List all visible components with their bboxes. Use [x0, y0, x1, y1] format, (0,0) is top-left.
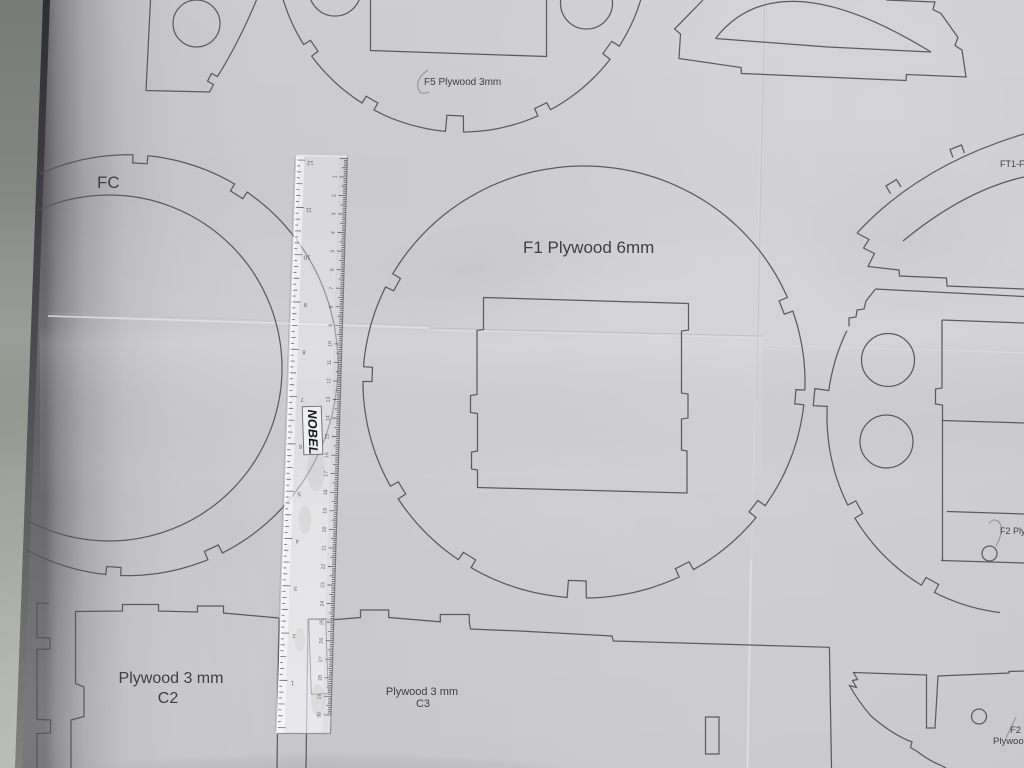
svg-text:11: 11 [305, 206, 312, 212]
svg-text:23: 23 [320, 582, 326, 588]
svg-text:20: 20 [322, 526, 328, 532]
svg-text:19: 19 [322, 508, 328, 514]
svg-text:15: 15 [325, 434, 331, 440]
svg-text:9: 9 [328, 324, 334, 327]
svg-text:12: 12 [326, 378, 332, 384]
svg-text:NOBEL: NOBEL [305, 409, 321, 455]
svg-text:C3: C3 [416, 698, 430, 710]
svg-text:4: 4 [331, 231, 337, 234]
svg-text:21: 21 [321, 545, 327, 551]
svg-text:5: 5 [330, 250, 336, 253]
svg-text:F1 Plywood 6mm: F1 Plywood 6mm [523, 238, 654, 257]
svg-text:27: 27 [318, 656, 324, 662]
svg-text:Plywood: Plywood [993, 736, 1024, 747]
svg-text:16: 16 [324, 452, 330, 458]
svg-text:10: 10 [303, 253, 311, 259]
svg-text:11: 11 [327, 360, 333, 366]
svg-text:8: 8 [328, 305, 334, 308]
svg-text:25: 25 [319, 619, 325, 625]
svg-text:6: 6 [330, 268, 336, 271]
svg-text:26: 26 [319, 638, 325, 644]
svg-text:24: 24 [320, 601, 326, 607]
svg-text:10: 10 [327, 341, 333, 347]
svg-text:FT1-F: FT1-F [1000, 159, 1024, 169]
svg-text:3: 3 [331, 212, 337, 215]
svg-text:1: 1 [332, 175, 338, 178]
svg-text:18: 18 [323, 489, 329, 495]
svg-text:C2: C2 [158, 690, 179, 707]
svg-text:F2 Ply: F2 Ply [1000, 526, 1024, 536]
svg-text:28: 28 [318, 675, 324, 681]
svg-text:F2: F2 [1010, 725, 1021, 736]
svg-text:7: 7 [329, 287, 335, 290]
svg-text:F5 Plywood 3mm: F5 Plywood 3mm [424, 77, 501, 88]
svg-text:13: 13 [326, 396, 332, 402]
svg-text:22: 22 [321, 563, 327, 569]
svg-text:2: 2 [332, 194, 338, 197]
svg-text:14: 14 [325, 415, 331, 421]
svg-text:12: 12 [306, 159, 314, 165]
svg-text:Plywood 3 mm: Plywood 3 mm [386, 686, 458, 698]
svg-text:Plywood 3 mm: Plywood 3 mm [119, 670, 224, 687]
svg-text:FC: FC [97, 173, 120, 192]
